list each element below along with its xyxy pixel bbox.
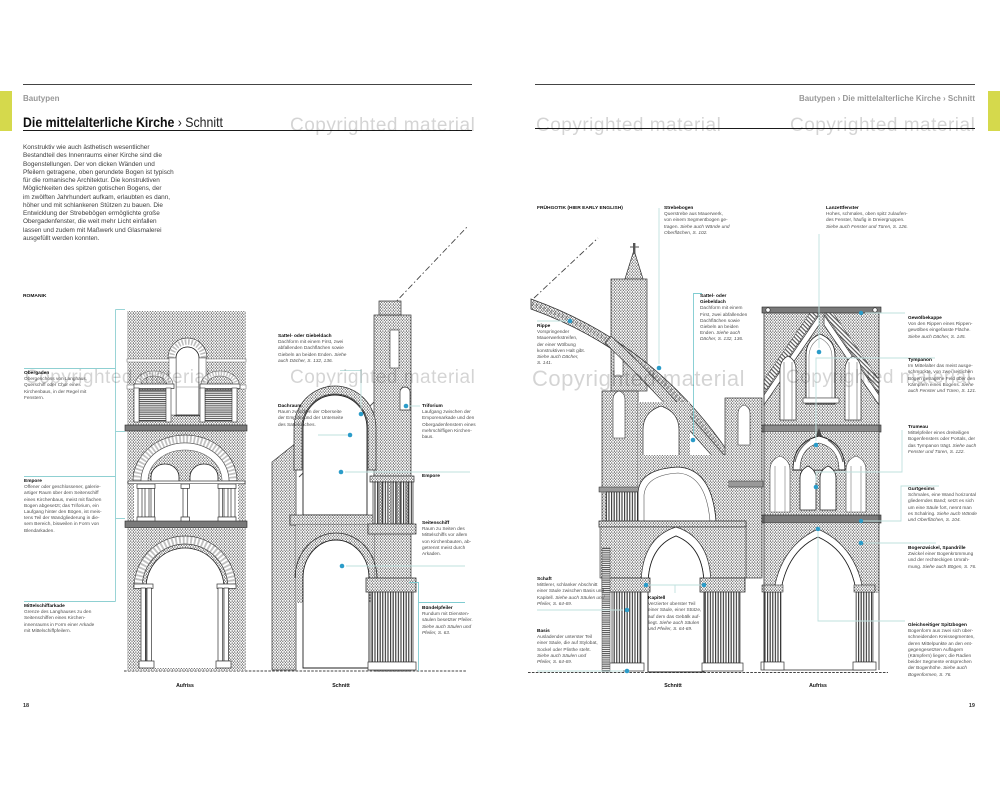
svg-text:Aufriss: Aufriss xyxy=(809,683,827,689)
svg-text:Schnitt: Schnitt xyxy=(332,683,350,689)
svg-text:Aufriss: Aufriss xyxy=(176,683,194,689)
svg-text:Schnitt: Schnitt xyxy=(664,683,682,689)
